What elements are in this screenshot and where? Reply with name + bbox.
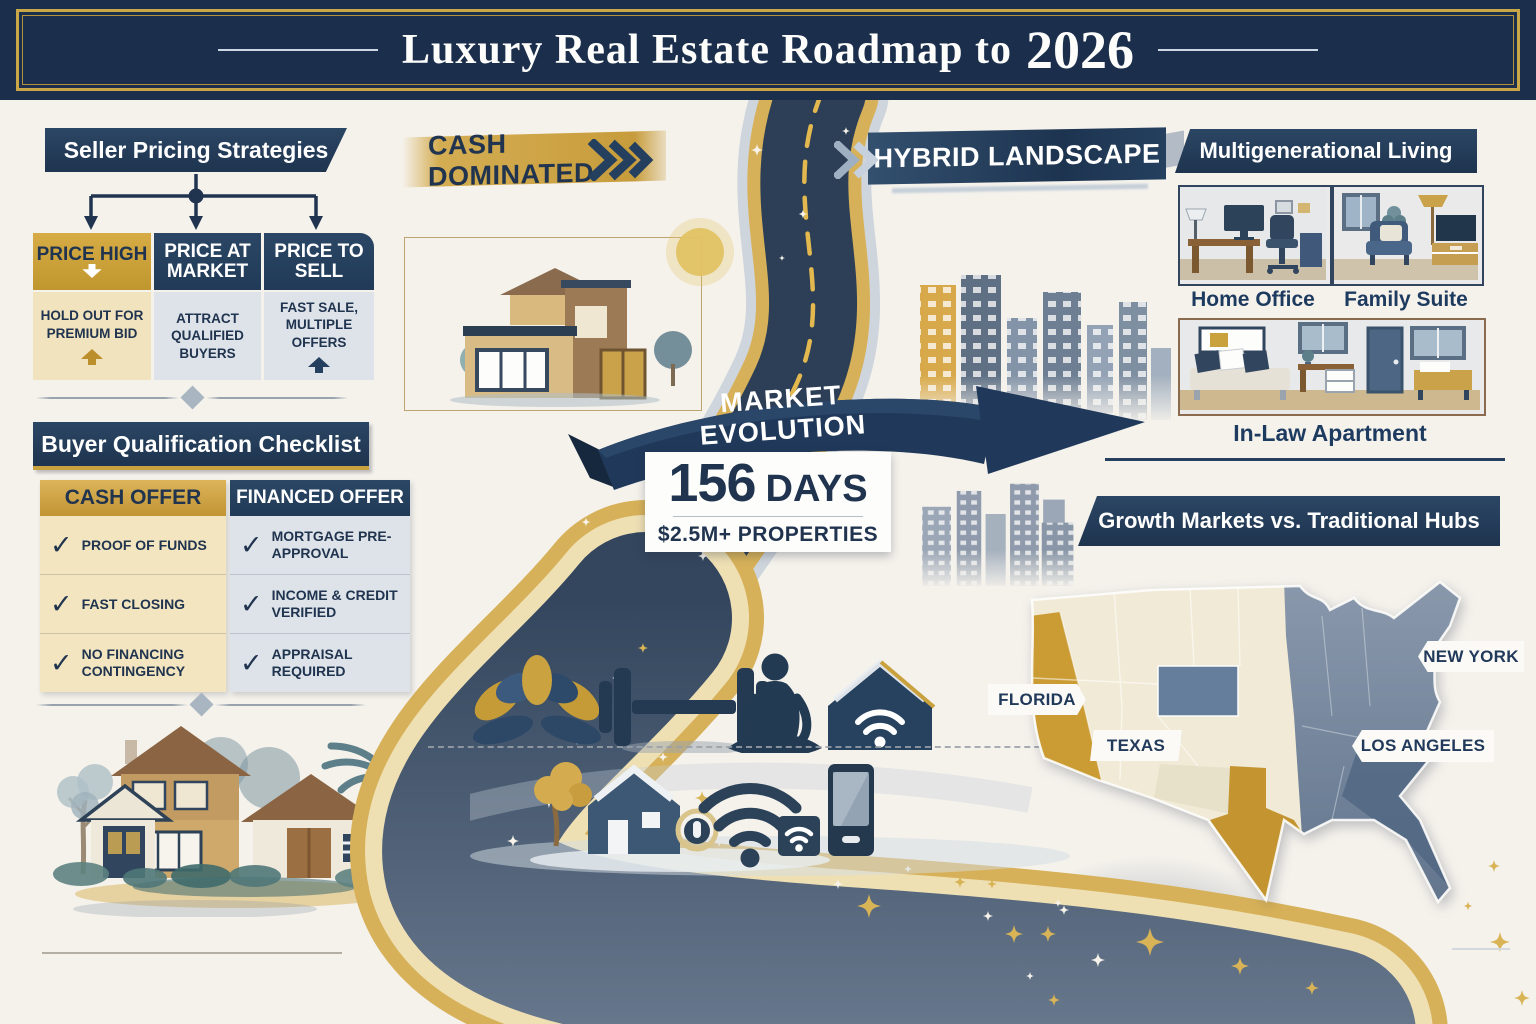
growth-markets-header: Growth Markets vs. Traditional Hubs [1078, 496, 1500, 546]
up-arrow-icon [306, 357, 332, 373]
stat-value: 156 [668, 458, 755, 509]
page-title: Luxury Real Estate Roadmap to [402, 26, 1012, 74]
checklist-item-label: PROOF OF FUNDS [82, 537, 207, 554]
in-law-apartment-illustration [1178, 318, 1486, 416]
checklist-item: ✓ NO FINANCING CONTINGENCY [40, 633, 226, 692]
hybrid-landscape-banner: HYBRID LANDSCAPE [868, 127, 1166, 184]
price-card-sell: PRICE TO SELL FAST SALE, MULTIPLE OFFERS [264, 233, 374, 380]
section-divider [36, 389, 348, 406]
smart-home-icon [828, 662, 934, 750]
home-office-illustration [1178, 185, 1332, 286]
room-label: Family Suite [1332, 288, 1480, 312]
flow-connector [45, 172, 347, 234]
map-label-los-angeles: LOS ANGELES [1352, 730, 1494, 762]
map-region-colorado [1158, 666, 1238, 716]
checklist-item-label: APPRAISAL REQUIRED [272, 646, 402, 680]
cash-offer-card: CASH OFFER ✓ PROOF OF FUNDS ✓ FAST CLOSI… [40, 480, 226, 692]
cash-offer-title: CASH OFFER [40, 480, 226, 516]
footer-rule-left [42, 952, 342, 954]
check-icon: ✓ [240, 591, 263, 618]
checklist-item-label: INCOME & CREDIT VERIFIED [272, 587, 402, 621]
checklist-item: ✓ FAST CLOSING [40, 574, 226, 633]
smartphone-icon [828, 764, 874, 856]
section-divider-rule [1105, 458, 1505, 461]
check-icon: ✓ [240, 532, 263, 559]
days-on-market-card: 156 DAYS $2.5M+ PROPERTIES [645, 452, 891, 552]
up-arrow-icon [79, 349, 105, 365]
checklist-item-label: FAST CLOSING [82, 596, 185, 613]
price-card-outcome: HOLD OUT FOR PREMIUM BID [36, 307, 148, 342]
family-suite-illustration [1332, 185, 1484, 286]
stat-segment: $2.5M+ PROPERTIES [658, 523, 878, 547]
checklist-item-label: MORTGAGE PRE-APPROVAL [272, 528, 402, 562]
financed-offer-card: FINANCED OFFER ✓ MORTGAGE PRE-APPROVAL ✓… [230, 480, 410, 692]
seller-pricing-header: Seller Pricing Strategies [45, 128, 347, 172]
smart-hub-icon [778, 816, 820, 856]
check-icon: ✓ [240, 650, 263, 677]
footer-rule-right [1452, 948, 1510, 950]
checklist-item: ✓ PROOF OF FUNDS [40, 516, 226, 574]
page-title-year: 2026 [1026, 19, 1134, 81]
smart-home-icons-row [470, 748, 1080, 880]
stat-divider [673, 516, 863, 517]
checklist-item: ✓ INCOME & CREDIT VERIFIED [230, 574, 410, 633]
check-icon: ✓ [50, 650, 73, 677]
title-rule-left [218, 49, 378, 51]
chevron-right-icon [834, 141, 878, 179]
price-card-market: PRICE AT MARKET ATTRACT QUALIFIED BUYERS [154, 233, 261, 380]
stat-unit: DAYS [766, 468, 868, 511]
diamond-divider-icon [189, 692, 213, 716]
financed-offer-title: FINANCED OFFER [230, 480, 410, 516]
section-divider [36, 696, 366, 713]
room-label: In-Law Apartment [1178, 420, 1482, 447]
lotus-icon [467, 655, 606, 750]
doorbell-icon [678, 811, 716, 849]
check-icon: ✓ [50, 591, 73, 618]
wellness-icons-row [460, 638, 940, 753]
map-label-florida: FLORIDA [988, 684, 1086, 715]
map-label-texas: TEXAS [1090, 730, 1182, 761]
down-arrow-icon [80, 264, 104, 278]
chevron-right-icon [588, 139, 654, 181]
checklist-item: ✓ APPRAISAL REQUIRED [230, 633, 410, 692]
price-card-title: PRICE AT MARKET [154, 242, 261, 282]
infographic-poster: Luxury Real Estate Roadmap to 2026 Selle… [0, 0, 1536, 1024]
price-card-outcome: ATTRACT QUALIFIED BUYERS [157, 310, 258, 363]
map-label-new-york: NEW YORK [1418, 641, 1524, 672]
buyer-checklist-header: Buyer Qualification Checklist [33, 422, 369, 470]
multigenerational-header: Multigenerational Living [1175, 129, 1477, 173]
room-label: Home Office [1178, 288, 1328, 312]
check-icon: ✓ [50, 532, 73, 559]
us-map [1002, 556, 1514, 1008]
price-card-title: PRICE HIGH [37, 245, 148, 265]
diamond-divider-icon [180, 385, 204, 409]
title-banner: Luxury Real Estate Roadmap to 2026 [0, 0, 1536, 100]
price-card-outcome: FAST SALE, MULTIPLE OFFERS [267, 299, 371, 352]
checklist-item-label: NO FINANCING CONTINGENCY [82, 646, 218, 680]
title-rule-right [1158, 49, 1318, 51]
price-card-title: PRICE TO SELL [264, 242, 374, 282]
checklist-item: ✓ MORTGAGE PRE-APPROVAL [230, 516, 410, 574]
price-card-high: PRICE HIGH HOLD OUT FOR PREMIUM BID [33, 233, 151, 380]
